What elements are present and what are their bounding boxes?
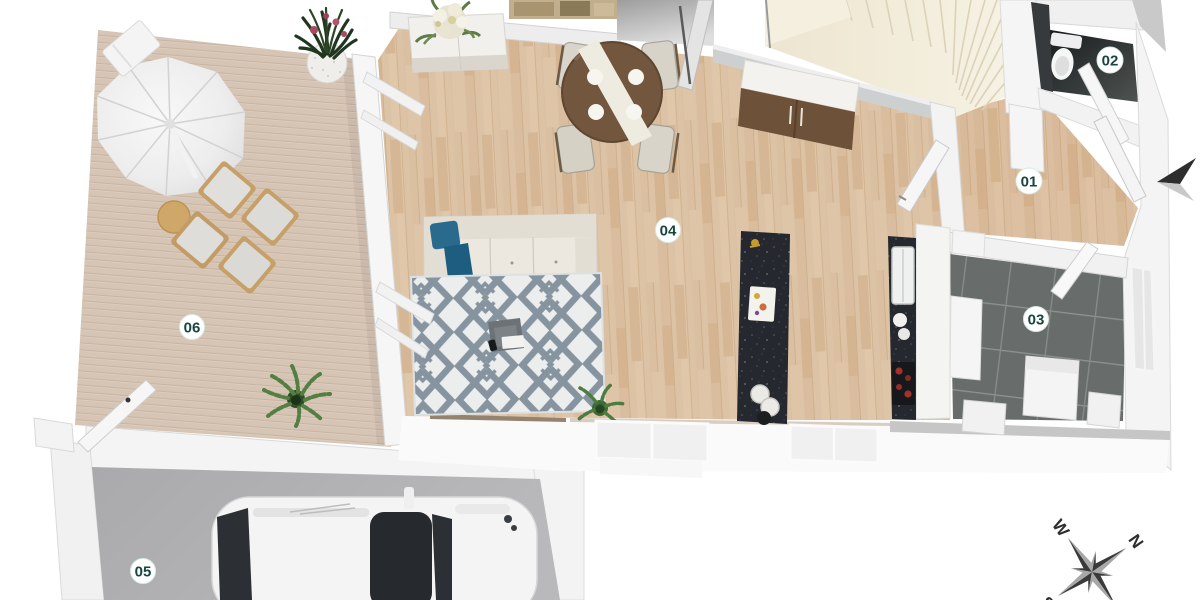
svg-text:05: 05: [135, 564, 152, 581]
svg-text:02: 02: [1102, 53, 1119, 70]
svg-text:04: 04: [660, 223, 677, 240]
svg-text:06: 06: [184, 320, 201, 337]
svg-text:01: 01: [1021, 174, 1038, 191]
svg-text:03: 03: [1028, 312, 1045, 329]
